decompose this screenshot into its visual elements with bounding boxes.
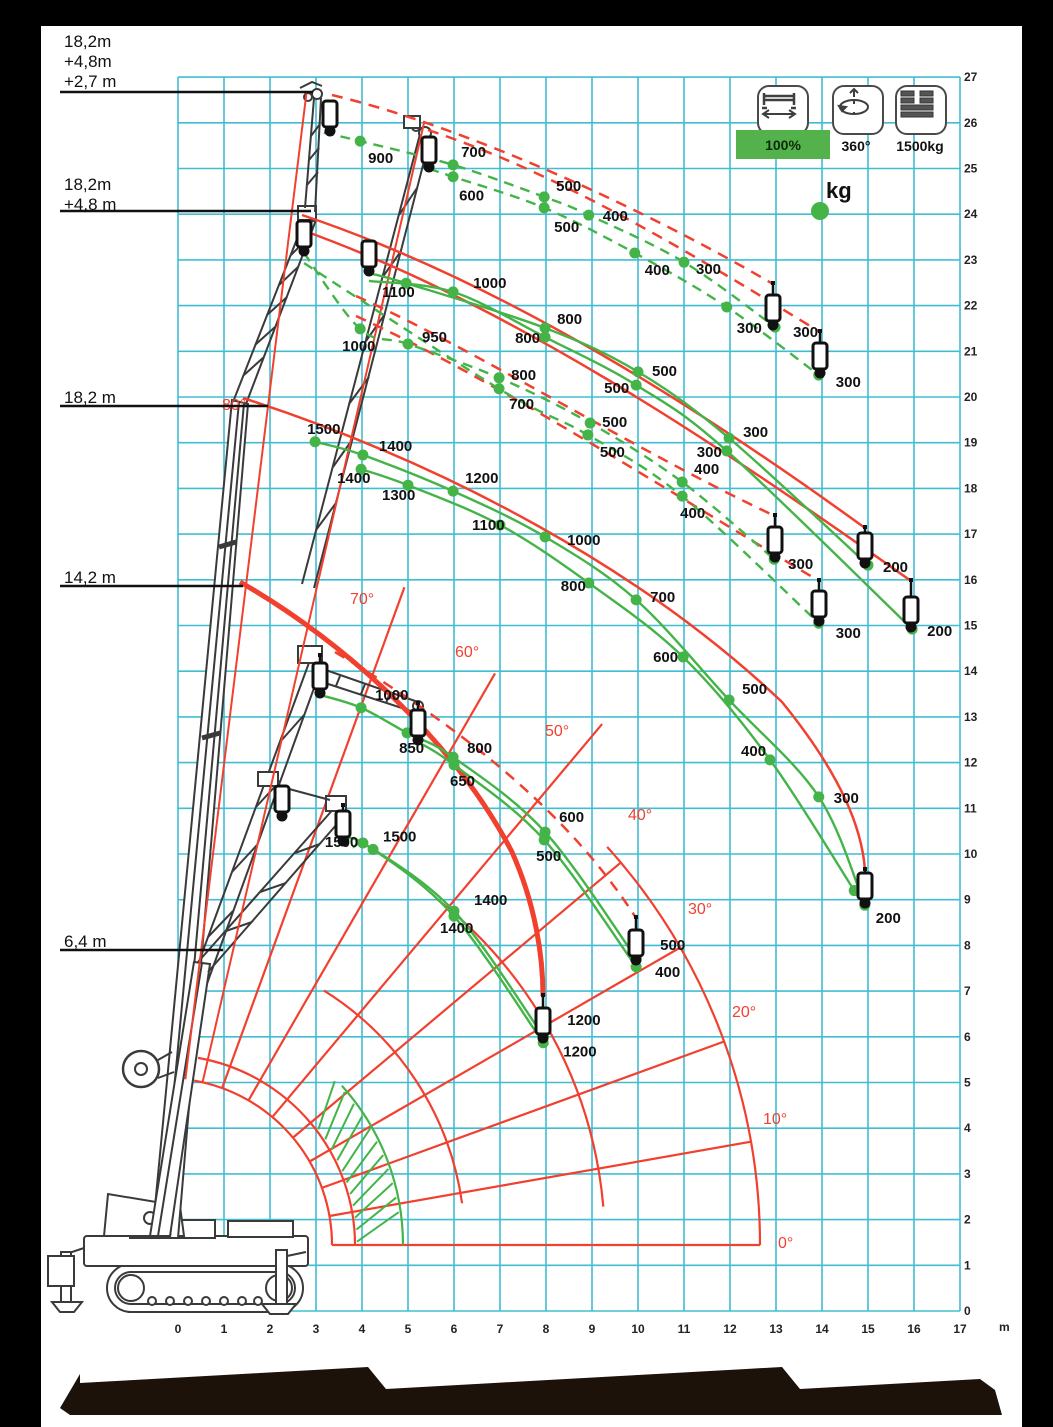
x-axis-tick: 16 (907, 1322, 921, 1336)
capacity-label: 1200 (465, 470, 498, 487)
capacity-point (631, 380, 642, 391)
capacity-label: 600 (459, 188, 484, 205)
capacity-label: 400 (694, 461, 719, 478)
grid (41, 26, 1022, 1427)
y-axis-tick: 19 (964, 436, 978, 450)
x-axis-tick: 12 (723, 1322, 737, 1336)
angle-label: 0° (778, 1235, 793, 1252)
angle-label: 60° (455, 644, 479, 661)
capacity-point (540, 531, 551, 542)
capacity-point (765, 754, 776, 765)
capacity-label: 1500 (383, 828, 416, 845)
y-axis-tick: 14 (964, 664, 978, 678)
hook-icon (362, 241, 376, 277)
capacity-point (355, 136, 366, 147)
capacity-label: 800 (557, 311, 582, 328)
capacity-point (356, 702, 367, 713)
y-axis-tick: 4 (964, 1121, 971, 1135)
y-axis-tick: 0 (964, 1304, 971, 1318)
capacity-label: 500 (604, 380, 629, 397)
y-axis-tick: 12 (964, 756, 978, 770)
capacity-label: 500 (554, 219, 579, 236)
y-axis-tick: 22 (964, 299, 978, 313)
capacity-point (355, 323, 366, 334)
capacity-point (583, 210, 594, 221)
y-axis-tick: 1 (964, 1258, 971, 1272)
capacity-label: 1400 (337, 470, 370, 487)
capacity-point (368, 844, 379, 855)
capacity-point (721, 445, 732, 456)
capacity-label: 1200 (567, 1012, 600, 1029)
capacity-label: 800 (511, 367, 536, 384)
capacity-point (813, 791, 824, 802)
capacity-point (310, 436, 321, 447)
capacity-label: 300 (834, 790, 859, 807)
capacity-label: 900 (368, 150, 393, 167)
y-axis-tick: 6 (964, 1030, 971, 1044)
x-axis-tick: 9 (589, 1322, 596, 1336)
capacity-point (448, 159, 459, 170)
capacity-label: 400 (603, 208, 628, 225)
capacity-label: 300 (697, 444, 722, 461)
boom-config-label-4: 14,2 m (64, 568, 116, 588)
boom-config-label-3: 18,2 m (64, 388, 116, 408)
capacity-point (494, 372, 505, 383)
capacity-label: 800 (467, 740, 492, 757)
y-axis-tick: 2 (964, 1213, 971, 1227)
capacity-point (539, 202, 550, 213)
outrigger-pct-badge: 100% (736, 130, 830, 159)
capacity-label: 800 (515, 330, 540, 347)
capacity-label: 200 (883, 559, 908, 576)
capacity-label: 850 (399, 740, 424, 757)
x-axis-unit: m (999, 1320, 1010, 1334)
capacity-label: 400 (645, 262, 670, 279)
capacity-point (721, 301, 732, 312)
capacity-point (585, 418, 596, 429)
capacity-label: 700 (509, 396, 534, 413)
capacity-label: 1100 (472, 517, 505, 534)
capacity-point (449, 759, 460, 770)
capacity-label: 1400 (379, 438, 412, 455)
angle-label: 20° (732, 1004, 756, 1021)
capacity-label: 1000 (567, 532, 600, 549)
capacity-point (357, 450, 368, 461)
rotation-label: 360° (832, 138, 880, 154)
capacity-point (678, 652, 689, 663)
capacity-label: 300 (836, 625, 861, 642)
y-axis-tick: 17 (964, 527, 978, 541)
capacity-label: 400 (655, 964, 680, 981)
capacity-point (540, 332, 551, 343)
capacity-label: 200 (876, 910, 901, 927)
y-axis-tick: 11 (964, 801, 977, 815)
capacity-label: 300 (793, 324, 818, 341)
crane-load-chart: 9007005004003003006005004003003001000950… (0, 0, 1053, 1427)
capacity-point (448, 171, 459, 182)
kg-unit-label: kg (826, 178, 852, 204)
boom-config-label-5: 6,4 m (64, 932, 107, 952)
capacity-label: 300 (788, 556, 813, 573)
x-axis-tick: 2 (267, 1322, 274, 1336)
x-axis-tick: 13 (769, 1322, 783, 1336)
y-axis-tick: 10 (964, 847, 978, 861)
y-axis-tick: 8 (964, 938, 971, 952)
angle-label: 40° (628, 807, 652, 824)
y-axis-tick: 23 (964, 253, 978, 267)
capacity-label: 1200 (563, 1044, 596, 1061)
capacity-label: 500 (602, 414, 627, 431)
hook-icon (275, 786, 289, 822)
y-axis-tick: 16 (964, 573, 978, 587)
y-axis-tick: 7 (964, 984, 971, 998)
capacity-label: 700 (650, 589, 675, 606)
capacity-point (539, 834, 550, 845)
y-axis-tick: 24 (964, 207, 978, 221)
capacity-label: 1000 (375, 687, 408, 704)
counterweight-icon (895, 85, 947, 135)
capacity-label: 1100 (382, 284, 415, 301)
y-axis-tick: 25 (964, 162, 978, 176)
capacity-label: 300 (743, 424, 768, 441)
y-axis-tick: 9 (964, 893, 971, 907)
capacity-point (582, 429, 593, 440)
angle-label: 10° (763, 1111, 787, 1128)
capacity-label: 1400 (474, 892, 507, 909)
capacity-label: 650 (450, 773, 475, 790)
x-axis-tick: 6 (451, 1322, 458, 1336)
x-axis-tick: 17 (953, 1322, 967, 1336)
y-axis-tick: 5 (964, 1076, 971, 1090)
capacity-label: 400 (680, 505, 705, 522)
x-axis-tick: 3 (313, 1322, 320, 1336)
capacity-point (724, 433, 735, 444)
capacity-label: 500 (600, 444, 625, 461)
boom-config-label-2: 18,2m +4,8 m (64, 175, 116, 215)
outrigger-span-icon (757, 85, 809, 135)
capacity-label: 600 (559, 809, 584, 826)
capacity-label: 500 (660, 937, 685, 954)
counterweight-label: 1500kg (890, 138, 950, 154)
x-axis-tick: 11 (678, 1322, 691, 1336)
capacity-point (629, 248, 640, 259)
capacity-label: 950 (422, 329, 447, 346)
capacity-label: 500 (536, 848, 561, 865)
y-axis-tick: 26 (964, 116, 978, 130)
capacity-point (448, 286, 459, 297)
hook-icon (858, 867, 872, 909)
hook-icon (323, 101, 337, 137)
x-axis-tick: 10 (631, 1322, 645, 1336)
capacity-point (494, 383, 505, 394)
capacity-point (631, 594, 642, 605)
y-axis-tick: 3 (964, 1167, 971, 1181)
capacity-label: 300 (836, 374, 861, 391)
capacity-label: 300 (696, 261, 721, 278)
y-axis-tick: 13 (964, 710, 978, 724)
rotation-360-icon (832, 85, 884, 135)
x-axis-tick: 15 (861, 1322, 875, 1336)
capacity-point (679, 257, 690, 268)
x-axis-tick: 5 (405, 1322, 412, 1336)
capacity-label: 500 (652, 363, 677, 380)
capacity-point (403, 338, 414, 349)
capacity-point (633, 366, 644, 377)
load-chart-canvas: 9007005004003003006005004003003001000950… (0, 0, 1053, 1427)
capacity-label: 1500 (307, 421, 340, 438)
x-axis-tick: 14 (815, 1322, 829, 1336)
capacity-point (539, 191, 550, 202)
x-axis-tick: 4 (359, 1322, 366, 1336)
x-axis-tick: 1 (221, 1322, 228, 1336)
boom-config-label-1: 18,2m +4,8m +2,7 m (64, 32, 116, 92)
capacity-label: 1500 (325, 834, 358, 851)
capacity-point (677, 477, 688, 488)
y-axis-tick: 15 (964, 619, 978, 633)
capacity-label: 600 (653, 649, 678, 666)
x-axis-tick: 7 (497, 1322, 504, 1336)
kg-marker-dot (811, 202, 829, 220)
angle-label: 50° (545, 723, 569, 740)
capacity-label: 500 (556, 178, 581, 195)
y-axis-tick: 27 (964, 70, 978, 84)
capacity-point (448, 486, 459, 497)
y-axis-tick: 21 (964, 344, 978, 358)
capacity-label: 1000 (342, 338, 375, 355)
capacity-label: 700 (461, 144, 486, 161)
capacity-label: 500 (742, 681, 767, 698)
y-axis-tick: 18 (964, 481, 978, 495)
capacity-label: 1000 (473, 275, 506, 292)
capacity-label: 200 (927, 623, 952, 640)
hook-icon (297, 221, 311, 257)
capacity-label: 800 (561, 578, 586, 595)
y-axis-tick: 20 (964, 390, 978, 404)
capacity-label: 1400 (440, 920, 473, 937)
capacity-label: 400 (741, 743, 766, 760)
capacity-point (677, 491, 688, 502)
x-axis-tick: 0 (175, 1322, 182, 1336)
angle-label: 30° (688, 901, 712, 918)
capacity-label: 300 (737, 320, 762, 337)
hook-icon (422, 137, 436, 173)
x-axis-tick: 8 (543, 1322, 550, 1336)
capacity-label: 1300 (382, 487, 415, 504)
angle-label: 70° (350, 591, 374, 608)
